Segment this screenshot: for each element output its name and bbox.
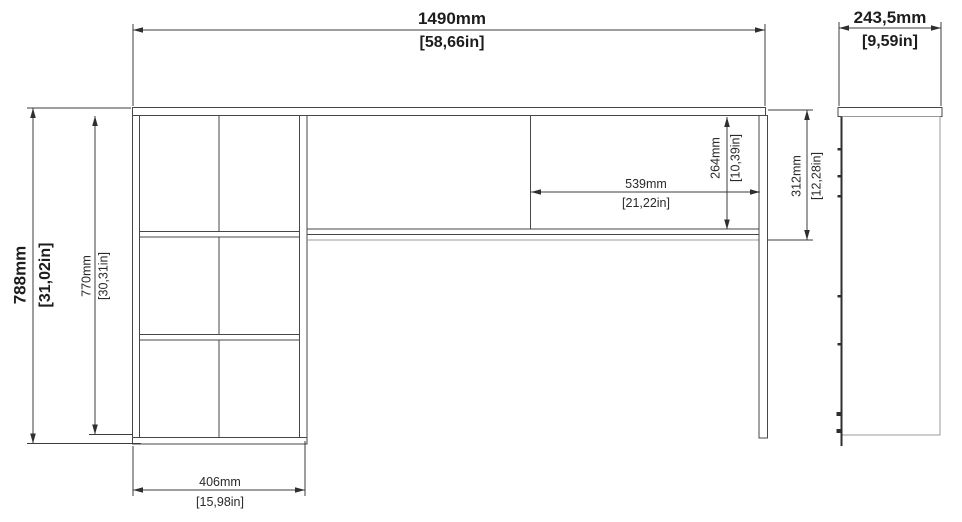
dimension-arrow	[92, 116, 98, 126]
side-body-panel	[842, 117, 941, 436]
dimension-label-inch: [10,39in]	[728, 134, 742, 182]
dimension-bookcase-width: 406mm [15,98in]	[133, 441, 305, 509]
dimension-overall-width: 1490mm [58,66in]	[133, 9, 765, 106]
dimension-label-mm: 770mm	[79, 255, 93, 297]
desk-top-panel	[133, 108, 766, 116]
dimension-arrow	[30, 108, 36, 118]
dimension-label-mm: 539mm	[625, 177, 667, 191]
right-leg-panel	[759, 116, 768, 439]
dimension-arrow	[133, 27, 143, 33]
dimension-bookcase-height: 770mm [30,31in]	[79, 116, 133, 435]
dimension-arrow	[531, 189, 541, 195]
dimension-arrow	[931, 25, 941, 31]
dimension-label-mm: 788mm	[10, 246, 29, 305]
technical-drawing: 1490mm [58,66in] 243,5mm [9,59in] 788mm …	[0, 0, 962, 522]
dimension-arrow	[804, 230, 810, 240]
dimension-label-mm: 264mm	[708, 137, 722, 179]
bookcase-left-panel	[133, 116, 140, 445]
side-desk-top-panel	[838, 108, 942, 117]
dimension-label-mm: 1490mm	[418, 9, 486, 28]
connector-mark	[837, 429, 842, 433]
dimension-label-mm: 312mm	[789, 155, 803, 197]
dimension-right-side-height: 312mm [12,28in]	[768, 110, 823, 240]
drawing-canvas: 1490mm [58,66in] 243,5mm [9,59in] 788mm …	[0, 0, 962, 522]
dimension-label-inch: [15,98in]	[196, 495, 244, 509]
connector-mark	[838, 175, 842, 178]
connector-mark	[838, 295, 842, 298]
back-rail	[307, 229, 760, 235]
bookcase-shelf-upper	[140, 232, 300, 238]
dimension-arrow	[839, 25, 849, 31]
connector-mark	[838, 195, 842, 198]
dimension-label-inch: [21,22in]	[622, 196, 670, 210]
dimension-back-panel-height: 264mm [10,39in]	[708, 117, 742, 230]
dimension-arrow	[30, 434, 36, 444]
connector-mark	[837, 412, 842, 416]
dimension-arrow	[724, 117, 730, 127]
dimension-label-mm: 243,5mm	[854, 8, 927, 27]
dimension-arrow	[755, 27, 765, 33]
dimension-side-depth: 243,5mm [9,59in]	[839, 8, 941, 106]
bookcase-shelf-lower	[140, 335, 300, 341]
dimension-label-inch: [58,66in]	[420, 34, 485, 51]
connector-mark	[838, 148, 842, 151]
dimension-overall-height: 788mm [31,02in]	[10, 108, 141, 444]
dimension-label-inch: [9,59in]	[862, 33, 918, 50]
dimension-arrow	[724, 220, 730, 230]
dimension-label-inch: [30,31in]	[96, 252, 110, 300]
dimension-label-inch: [12,28in]	[809, 152, 823, 200]
bookcase-bottom-panel	[133, 438, 308, 445]
dimension-arrow	[804, 110, 810, 120]
bookcase-right-panel	[300, 116, 308, 445]
connector-mark	[838, 343, 842, 346]
side-view	[837, 108, 943, 447]
dimension-label-mm: 406mm	[199, 475, 241, 489]
dimension-arrow	[295, 487, 305, 493]
dimension-arrow	[92, 425, 98, 435]
dimension-back-panel-width: 539mm [21,22in]	[531, 177, 760, 210]
dimension-label-inch: [31,02in]	[37, 243, 54, 308]
dimension-arrow	[133, 487, 143, 493]
